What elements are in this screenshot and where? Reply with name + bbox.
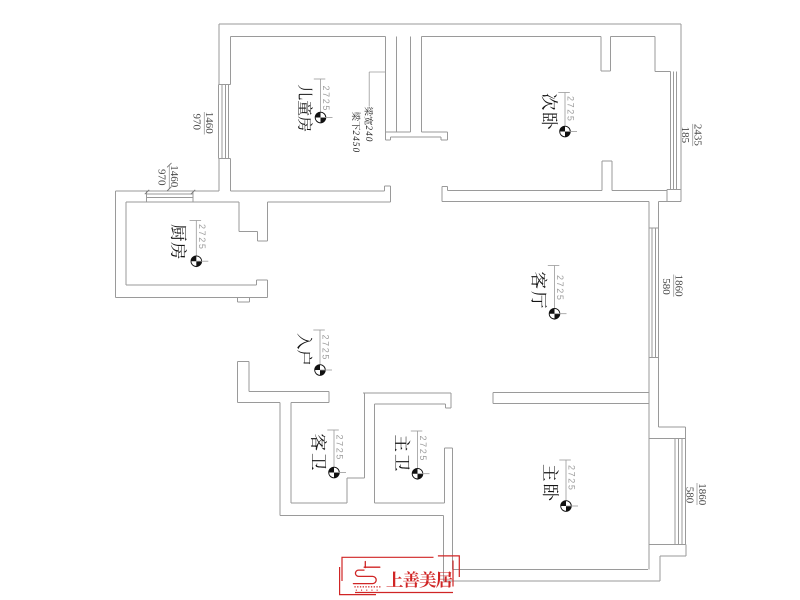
svg-text:2725: 2725	[418, 436, 428, 462]
svg-text:970: 970	[156, 169, 168, 186]
svg-text:2725: 2725	[567, 465, 577, 491]
svg-text:970: 970	[191, 114, 203, 131]
svg-text:1860: 1860	[673, 275, 685, 298]
svg-text:2725: 2725	[321, 86, 331, 112]
svg-text:2725: 2725	[197, 224, 207, 250]
svg-text:2450: 2450	[351, 131, 361, 154]
svg-text:2725: 2725	[555, 275, 565, 301]
svg-text:2435: 2435	[692, 124, 704, 146]
svg-text:580: 580	[683, 487, 695, 504]
svg-text:580: 580	[660, 278, 672, 295]
svg-text:2725: 2725	[335, 435, 345, 461]
svg-text:2725: 2725	[321, 335, 331, 361]
svg-text:1460: 1460	[203, 112, 215, 135]
svg-text:2725: 2725	[566, 96, 576, 122]
svg-text:1460: 1460	[168, 165, 180, 188]
svg-text:185: 185	[679, 127, 691, 144]
svg-text:240: 240	[364, 126, 374, 143]
svg-text:1860: 1860	[696, 483, 708, 506]
